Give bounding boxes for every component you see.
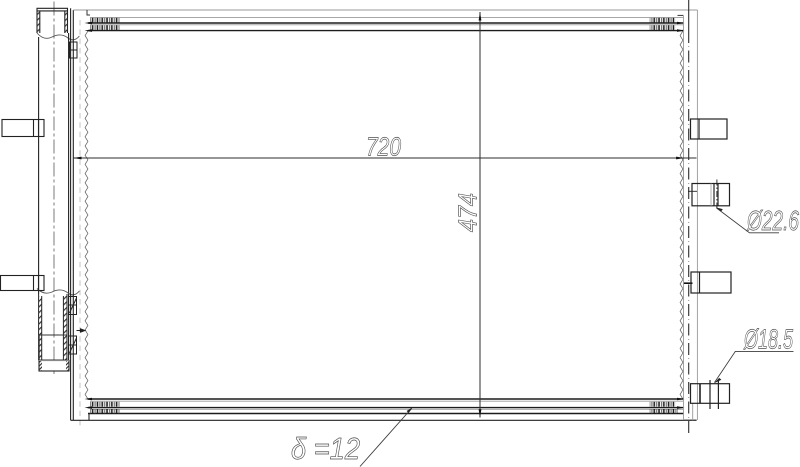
svg-text:Ø18.5: Ø18.5 [743, 324, 793, 355]
svg-text:δ =12: δ =12 [291, 431, 360, 466]
svg-text:474: 474 [453, 193, 483, 232]
svg-text:Ø22.6: Ø22.6 [746, 205, 799, 236]
svg-text:720: 720 [366, 132, 401, 162]
